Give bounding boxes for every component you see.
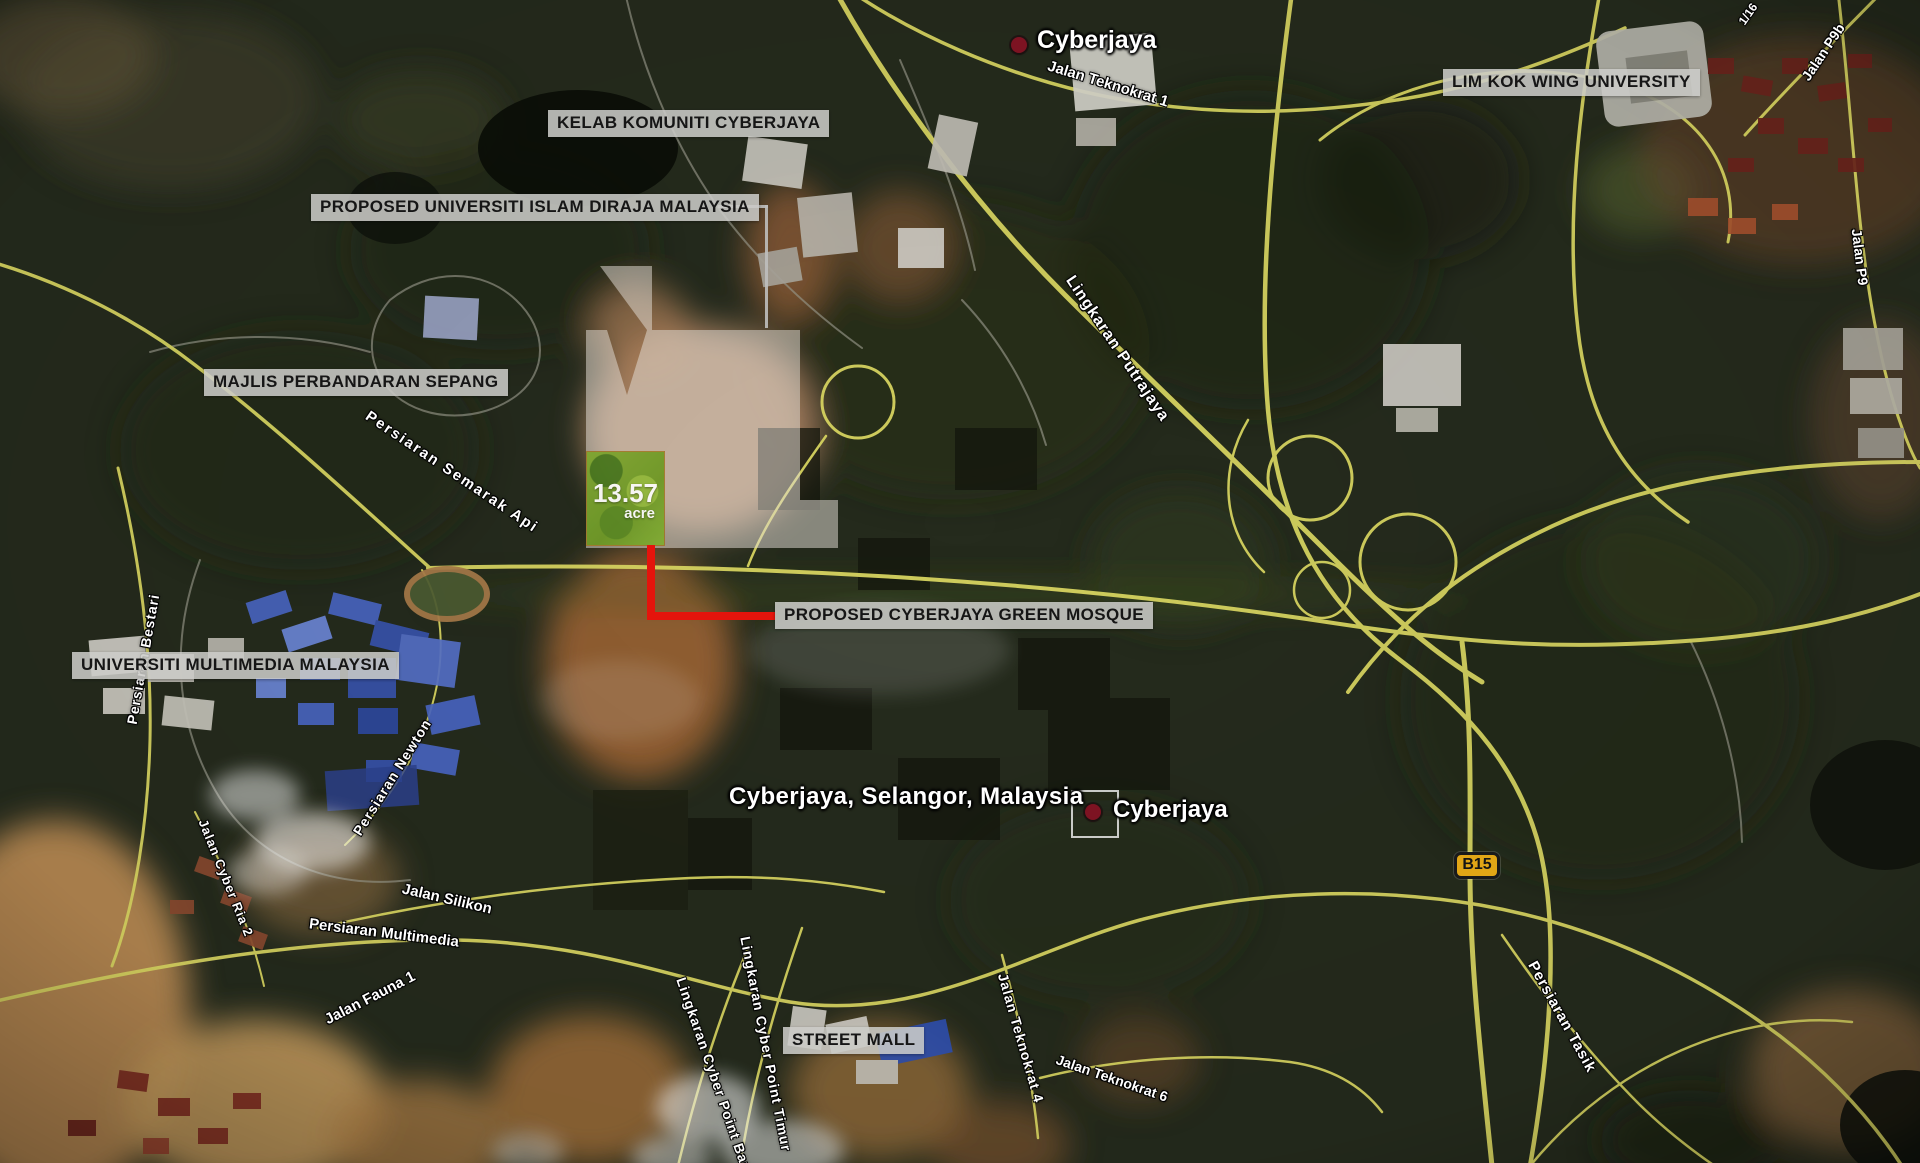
overlay-label-universiti-multimedia-malaysia: UNIVERSITI MULTIMEDIA MALAYSIA xyxy=(72,652,399,679)
plot-13-57-acre: 13.57 acre xyxy=(586,451,665,546)
place-marker-dot[interactable] xyxy=(1011,37,1027,53)
overlay-label-proposed-universiti-islam-diraja-malaysia: PROPOSED UNIVERSITI ISLAM DIRAJA MALAYSI… xyxy=(311,194,759,221)
overlay-label-kelab-komuniti-cyberjaya: KELAB KOMUNITI CYBERJAYA xyxy=(548,110,829,137)
map-location-caption: Cyberjaya, Selangor, Malaysia xyxy=(729,783,1083,811)
mosque-connector-line-horizontal xyxy=(647,612,775,620)
place-marker-label[interactable]: Cyberjaya xyxy=(1113,796,1228,824)
mosque-connector-line-vertical xyxy=(647,545,655,620)
satellite-imagery xyxy=(0,0,1920,1163)
overlay-label-street-mall: STREET MALL xyxy=(783,1027,924,1054)
place-marker-dot[interactable] xyxy=(1085,804,1101,820)
overlay-label-lim-kok-wing-university: LIM KOK WING UNIVERSITY xyxy=(1443,69,1700,96)
plot-area-value: 13.57 xyxy=(593,480,658,506)
place-marker-label[interactable]: Cyberjaya xyxy=(1037,26,1157,55)
university-leader-line-vertical xyxy=(765,205,768,328)
route-badge-b15: B15 xyxy=(1454,852,1500,879)
map-canvas[interactable]: 13.57 acre Jalan Teknokrat 1Lingkaran Pu… xyxy=(0,0,1920,1163)
plot-area-unit: acre xyxy=(624,505,655,522)
overlay-label-proposed-cyberjaya-green-mosque: PROPOSED CYBERJAYA GREEN MOSQUE xyxy=(775,602,1153,629)
overlay-label-majlis-perbandaran-sepang: MAJLIS PERBANDARAN SEPANG xyxy=(204,369,508,396)
